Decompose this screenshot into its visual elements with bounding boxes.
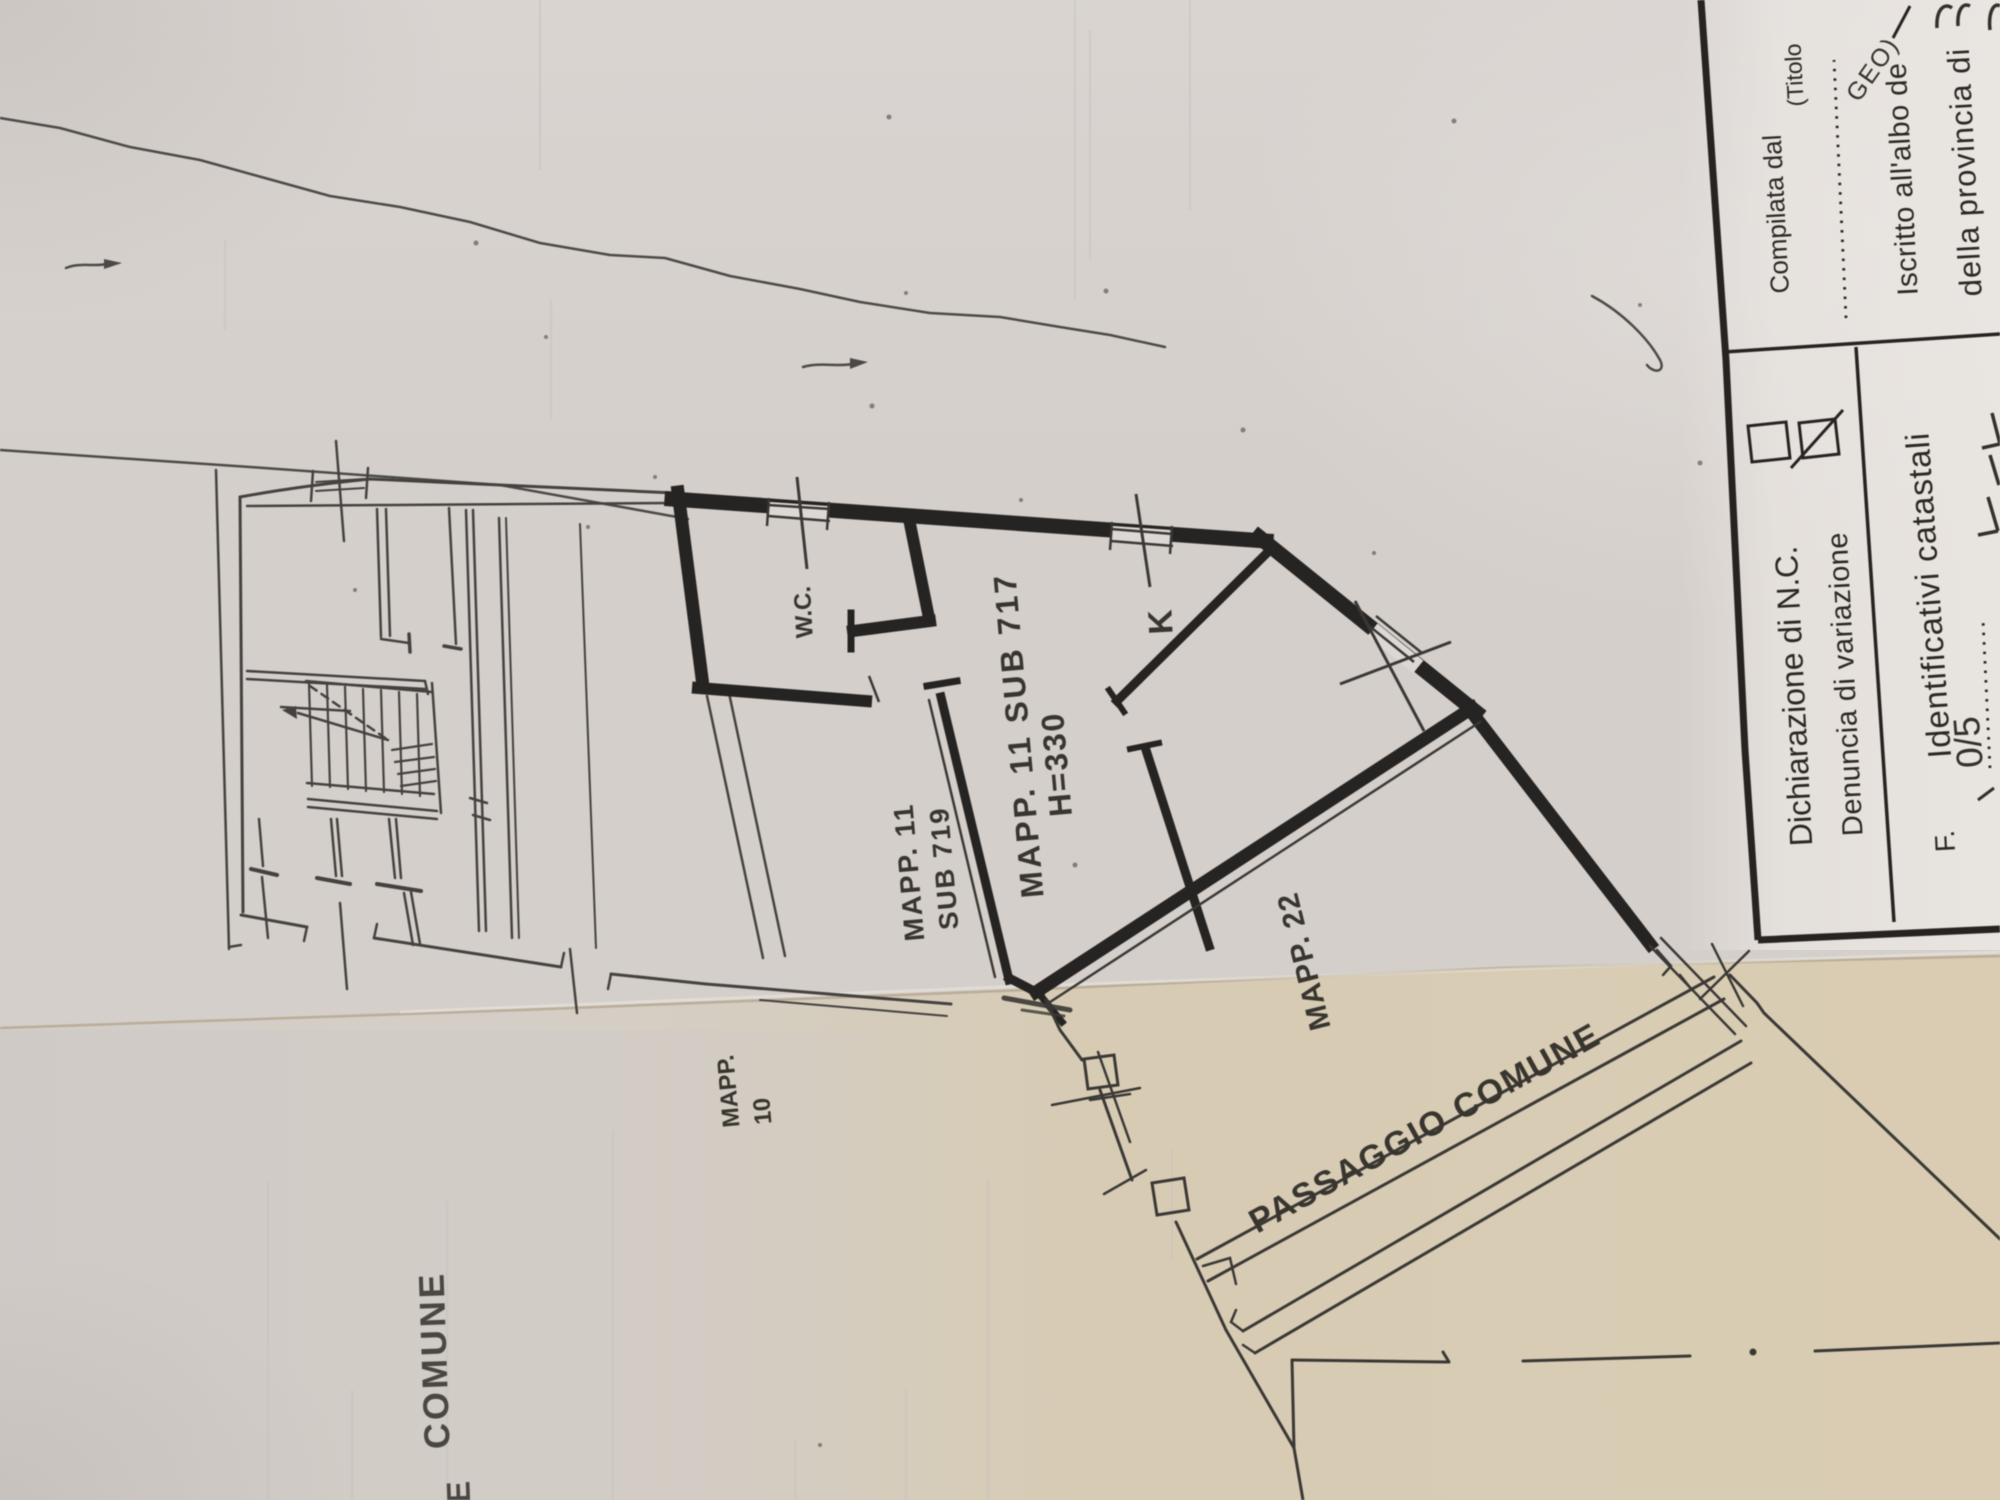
svg-text:F.: F.: [1929, 829, 1961, 852]
svg-text:Compilata dal: Compilata dal: [1757, 134, 1795, 294]
svg-text:E: E: [439, 1480, 477, 1500]
svg-text:K: K: [1141, 608, 1180, 635]
svg-text:0/5: 0/5: [1946, 715, 1991, 770]
svg-text:Denuncia di variazione: Denuncia di variazione: [1822, 531, 1870, 837]
svg-text:Dichiarazione di N.C.: Dichiarazione di N.C.: [1768, 545, 1820, 847]
svg-text:W.C.: W.C.: [789, 585, 819, 638]
svg-text:MAPP.: MAPP.: [712, 1054, 745, 1129]
svg-text:PASSAGGIO COMUNE: PASSAGGIO COMUNE: [1243, 1016, 1608, 1241]
svg-text:MAPP. 22: MAPP. 22: [1271, 889, 1337, 1034]
svg-text:COMUNE: COMUNE: [410, 1270, 457, 1449]
svg-text:della provincia di: della provincia di: [1941, 47, 1989, 297]
svg-text:Iscritto all'albo de: Iscritto all'albo de: [1881, 62, 1925, 297]
svg-text:MAPP. 11: MAPP. 11: [887, 802, 930, 943]
svg-text:(Titolo: (Titolo: [1779, 43, 1808, 107]
svg-text:10: 10: [748, 1097, 777, 1126]
svg-text:Identificativi catastali: Identificativi catastali: [1898, 431, 1958, 759]
